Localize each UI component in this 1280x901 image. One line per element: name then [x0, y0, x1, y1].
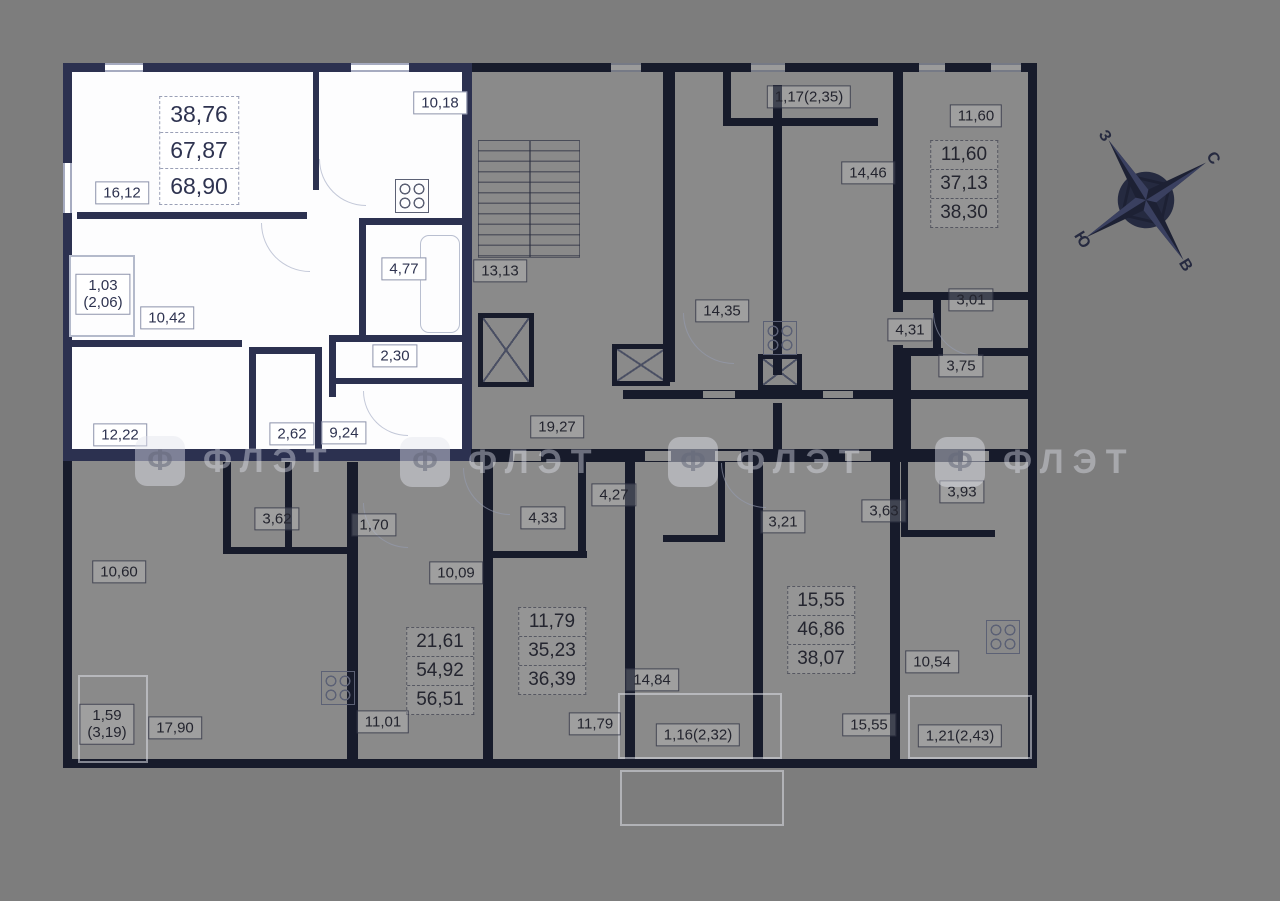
stove-icon — [321, 671, 355, 705]
wall-segment — [723, 118, 878, 126]
wall-segment — [359, 218, 366, 340]
wall-segment — [978, 348, 1028, 356]
summary-area-value: 38,30 — [931, 198, 997, 227]
wall-segment — [313, 72, 319, 190]
balcony-outline — [620, 770, 784, 826]
window — [919, 63, 945, 72]
summary-area-value: 35,23 — [519, 636, 585, 665]
wall-segment — [223, 462, 231, 554]
elevator — [478, 313, 534, 387]
wall-segment — [963, 451, 989, 461]
room-area-label: 12,22 — [93, 423, 147, 446]
balcony-area-value: (2,06) — [83, 294, 122, 311]
room-area-label: 14,35 — [695, 299, 749, 322]
balcony-area-value: (3,19) — [87, 724, 126, 741]
wall-segment — [72, 449, 472, 461]
summary-area-value: 11,60 — [931, 141, 997, 169]
wall-segment — [663, 72, 675, 382]
wall-segment — [493, 551, 587, 558]
room-area-label: 10,60 — [92, 560, 146, 583]
compass-rose-icon: С В Ю З — [1066, 120, 1226, 280]
room-area-label: 16,12 — [95, 181, 149, 204]
room-area-label: 10,42 — [140, 306, 194, 329]
stove-icon — [395, 179, 429, 213]
balcony-area-value: 1,59 — [87, 707, 126, 724]
room-area-label: 19,27 — [530, 415, 584, 438]
wall-segment — [823, 391, 853, 398]
apartment-summary-areas: 11,79 35,23 36,39 — [518, 607, 586, 695]
compass-west-label: З — [1095, 127, 1115, 145]
wall-segment — [77, 212, 307, 219]
wall-segment — [1028, 63, 1037, 768]
summary-area-value: 38,07 — [788, 644, 854, 673]
window — [105, 63, 143, 72]
wall-segment — [663, 535, 725, 542]
summary-area-value: 37,13 — [931, 169, 997, 198]
room-area-label: 3,21 — [760, 510, 805, 533]
room-area-label: 9,24 — [321, 421, 366, 444]
compass-east-label: В — [1175, 256, 1196, 275]
wall-segment — [329, 335, 336, 397]
compass-north-label: С — [1203, 149, 1224, 168]
door-arc — [463, 468, 510, 515]
summary-area-value: 54,92 — [407, 656, 473, 685]
wall-segment — [903, 356, 911, 449]
wall-segment — [513, 451, 541, 461]
room-area-label: 4,27 — [591, 483, 636, 506]
room-area-label: 11,79 — [569, 712, 621, 735]
room-area-label: 3,01 — [948, 288, 993, 311]
room-area-label: 4,33 — [520, 506, 565, 529]
window — [611, 63, 641, 72]
floorplan-canvas: 38,76 67,87 68,90 16,12 10,18 4,77 10,42… — [0, 0, 1280, 901]
room-area-label: 2,62 — [269, 422, 314, 445]
balcony-area-label: 1,17(2,35) — [767, 85, 851, 108]
window — [351, 63, 409, 72]
room-area-label: 4,31 — [887, 318, 932, 341]
balcony-area-label: 1,16(2,32) — [656, 723, 740, 746]
summary-area-value: 67,87 — [160, 132, 238, 168]
apartment-summary-areas: 38,76 67,87 68,90 — [159, 96, 239, 205]
wall-segment — [645, 451, 671, 461]
wall-segment — [363, 218, 462, 225]
summary-area-value: 46,86 — [788, 615, 854, 644]
wall-segment — [845, 451, 871, 461]
room-area-label: 4,77 — [381, 257, 426, 280]
wall-segment — [893, 72, 903, 312]
summary-area-value: 21,61 — [407, 628, 473, 656]
summary-area-value: 36,39 — [519, 665, 585, 694]
staircase — [478, 140, 580, 258]
apartment-summary-areas: 15,55 46,86 38,07 — [787, 586, 855, 674]
wall-segment — [703, 391, 735, 398]
balcony-area-value: 1,03 — [83, 277, 122, 294]
elevator — [612, 344, 670, 386]
wall-segment — [578, 462, 586, 558]
wall-segment — [249, 347, 322, 354]
bathtub-icon — [420, 235, 460, 333]
wall-segment — [773, 403, 782, 449]
room-area-label: 14,46 — [841, 161, 895, 184]
room-area-label: 10,54 — [905, 650, 959, 673]
room-area-label: 11,60 — [950, 104, 1002, 127]
summary-area-value: 15,55 — [788, 587, 854, 615]
wall-segment — [63, 759, 1037, 768]
room-area-label: 3,62 — [254, 507, 299, 530]
room-area-label: 3,63 — [861, 499, 906, 522]
stove-icon — [986, 620, 1020, 654]
wall-segment — [329, 378, 462, 384]
wall-segment — [901, 530, 995, 537]
room-area-label: 13,13 — [473, 259, 527, 282]
room-area-label: 10,09 — [429, 561, 483, 584]
door-arc — [721, 463, 766, 508]
room-area-label: 17,90 — [148, 716, 202, 739]
balcony-area-label: 1,59 (3,19) — [79, 704, 134, 745]
balcony-area-label: 1,21(2,43) — [918, 724, 1002, 747]
window — [751, 63, 785, 72]
summary-area-value: 11,79 — [519, 608, 585, 636]
balcony-area-label: 1,03 (2,06) — [75, 274, 130, 315]
summary-area-value: 56,51 — [407, 685, 473, 714]
wall-segment — [329, 335, 462, 342]
apartment-summary-areas: 21,61 54,92 56,51 — [406, 627, 474, 715]
room-area-label: 3,93 — [939, 480, 984, 503]
wall-segment — [223, 547, 358, 554]
wall-segment — [462, 63, 472, 461]
room-area-label: 14,84 — [625, 668, 679, 691]
wall-segment — [72, 340, 242, 347]
wall-segment — [715, 451, 741, 461]
wall-segment — [893, 345, 903, 449]
wall-segment — [249, 347, 256, 449]
summary-area-value: 68,90 — [160, 168, 238, 204]
stove-icon — [763, 321, 797, 355]
room-area-label: 15,55 — [842, 713, 896, 736]
summary-area-value: 38,76 — [160, 97, 238, 132]
apartment-summary-areas: 11,60 37,13 38,30 — [930, 140, 998, 228]
room-area-label: 1,70 — [351, 513, 396, 536]
window — [63, 163, 72, 213]
window — [991, 63, 1021, 72]
room-area-label: 11,01 — [357, 710, 409, 733]
room-area-label: 2,30 — [372, 344, 417, 367]
wall-segment — [471, 449, 1028, 462]
wall-segment — [901, 462, 908, 534]
compass-south-label: Ю — [1070, 229, 1093, 252]
room-area-label: 10,18 — [413, 91, 467, 114]
room-area-label: 3,75 — [938, 354, 983, 377]
